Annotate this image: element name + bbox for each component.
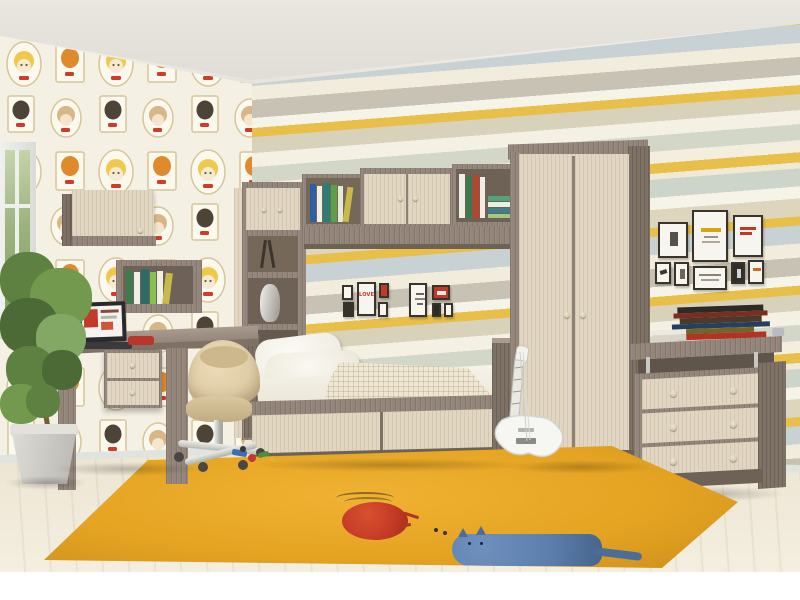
desk-toy-red — [128, 336, 154, 345]
poster-tall — [409, 283, 427, 317]
poster-love-text: LOVE — [359, 292, 374, 298]
poster-red-wide — [432, 285, 450, 300]
wardrobe-door-seam — [572, 156, 575, 450]
frame-graphic — [702, 241, 720, 243]
potted-plant — [0, 244, 110, 492]
poster-dark-small — [432, 303, 441, 317]
wardrobe-shadow — [506, 460, 656, 474]
poster-red-small — [379, 283, 389, 298]
poster-text-mark — [415, 298, 425, 300]
toy-dark — [240, 446, 246, 452]
bed-drawer-seam — [380, 412, 383, 452]
book-spine — [150, 272, 156, 304]
plant-shadow — [4, 476, 88, 490]
gadget — [772, 328, 784, 336]
book-spine — [317, 186, 322, 222]
poster-small — [378, 302, 388, 317]
dresser-side-panel — [758, 361, 786, 489]
photo-border-bottom — [0, 572, 800, 600]
book-spine — [141, 269, 149, 304]
book-spine — [459, 174, 465, 218]
chair-cushion — [200, 346, 248, 368]
gallery-frame — [658, 222, 688, 258]
gallery-frame-group — [652, 206, 770, 290]
poster-small — [444, 303, 453, 317]
rug-blue-cat-body — [452, 534, 602, 566]
book-spine — [126, 270, 133, 304]
desk-shadow — [52, 462, 202, 476]
poster-wall-group: LOVE — [338, 280, 458, 322]
bed-shadow — [250, 458, 530, 472]
frame-graphic-red — [740, 227, 756, 230]
chair-caster-wheel — [174, 452, 184, 462]
poster-love: LOVE — [357, 282, 376, 316]
chair-seat — [186, 396, 252, 422]
desk-drawer-knob — [130, 390, 135, 395]
wardrobe-knob — [580, 312, 586, 318]
poster-text-mark — [417, 303, 423, 305]
window-muntin-horizontal — [5, 204, 30, 208]
frame-graphic — [699, 274, 721, 276]
rug-blue-cat-ear — [458, 528, 468, 537]
frame-graphic — [737, 269, 741, 278]
book-spine — [331, 185, 337, 222]
dresser-drawer — [642, 373, 758, 409]
electric-guitar — [486, 344, 568, 474]
rug-dot — [443, 531, 447, 535]
book-spine — [473, 175, 479, 218]
book-spine — [480, 177, 485, 218]
decor-vase — [260, 284, 280, 322]
frame-graphic-orange — [753, 268, 761, 271]
rug-dot — [434, 528, 438, 532]
bookcase-top-doors — [246, 188, 300, 230]
book-spine — [310, 184, 316, 222]
poster-small — [342, 285, 353, 300]
book-spine — [466, 176, 472, 218]
book-spine — [134, 272, 140, 304]
gallery-frame — [693, 266, 727, 290]
poster-text-mark — [416, 293, 424, 295]
wardrobe-knob — [564, 312, 570, 318]
desk-drawer-knob — [130, 363, 135, 368]
frame-graphic-red — [740, 232, 752, 235]
kids-room-photo: LOVE — [0, 0, 800, 600]
frame-graphic — [670, 232, 678, 246]
frame-graphic — [701, 279, 719, 281]
gallery-frame-dark — [731, 262, 745, 284]
rug-blue-cat-eye — [468, 542, 471, 545]
rug-blue-cat-ear — [476, 526, 486, 535]
bridge-underside-edge — [304, 244, 520, 249]
rug-red-bird-body — [342, 502, 408, 540]
book-spine — [323, 183, 330, 222]
poster-dark-small — [343, 302, 354, 317]
frame-graphic — [680, 269, 685, 279]
gallery-frame — [655, 262, 671, 284]
bridge-cabinet-knob — [413, 196, 418, 201]
frame-graphic — [704, 236, 718, 238]
gallery-frame — [692, 210, 728, 262]
gallery-frame — [733, 215, 763, 257]
poster-text-mark — [437, 291, 446, 295]
gallery-frame — [674, 262, 689, 286]
dresser-drawer — [642, 407, 758, 443]
bookcase-knob — [262, 208, 266, 212]
bridge-cabinet-knob — [398, 196, 403, 201]
frame-graphic-yellow — [701, 228, 721, 232]
frame-graphic — [660, 269, 668, 275]
rug-blue-cat-eye — [480, 542, 483, 545]
wall-cabinet-knob — [138, 228, 143, 233]
gallery-frame — [748, 260, 764, 284]
bridge-cabinet-door-seam — [406, 174, 408, 224]
plant-foliage — [26, 384, 60, 418]
bookcase-knob — [278, 208, 282, 212]
